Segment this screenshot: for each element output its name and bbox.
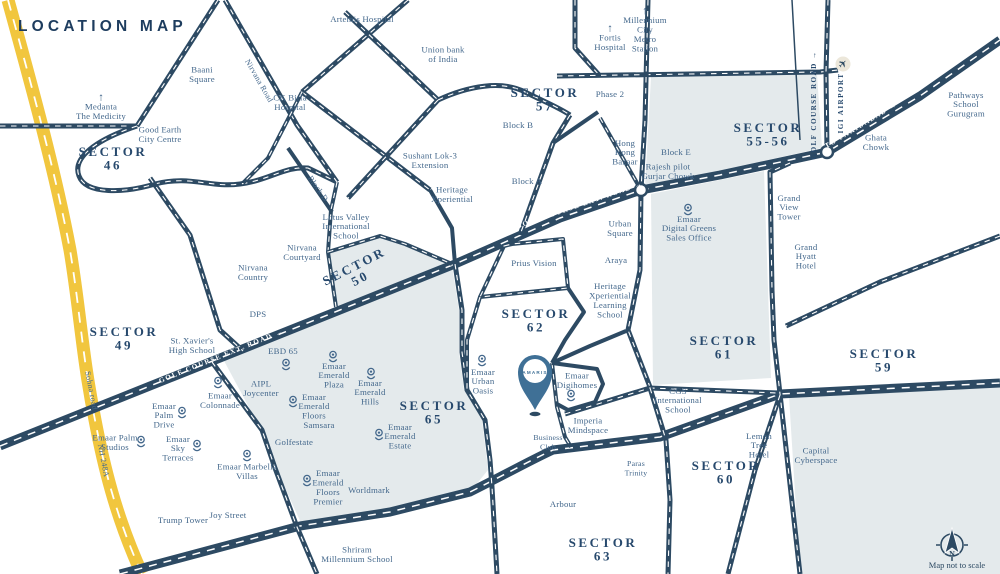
- landmark-label: EBD 65: [268, 346, 298, 356]
- sector-label: SECTOR46: [79, 144, 148, 173]
- amaris-pin-label: AMARIS: [522, 370, 547, 375]
- road: [0, 40, 1000, 446]
- landmark-label: NirvanaCountry: [238, 262, 269, 281]
- landmark-label: ParasTrinity: [625, 459, 648, 477]
- road: [728, 395, 780, 574]
- landmark-label: GrandHyattHotel: [795, 242, 818, 271]
- landmark-label: St. Xavier'sHigh School: [169, 335, 216, 354]
- landmark-label: Arbour: [550, 499, 577, 509]
- direction-arrow-icon: ↑: [607, 22, 613, 34]
- road: [650, 388, 670, 574]
- landmark-label: NirvanaCourtyard: [283, 242, 321, 261]
- landmark-label: Worldmark: [348, 485, 390, 495]
- landmark-label: Trump Tower: [158, 515, 208, 525]
- landmark-label: ShriramMillennium School: [321, 544, 393, 563]
- location-pin-icon: [214, 377, 221, 387]
- sector-label: SECTOR59: [850, 346, 919, 375]
- landmark-label: Phase 2: [596, 89, 625, 99]
- location-pin-icon: [567, 390, 574, 400]
- direction-arrow-icon: ↑: [642, 5, 648, 17]
- location-pin-icon: [178, 407, 185, 417]
- landmark-label: Rajesh pilotGurjar Chowk: [642, 161, 695, 180]
- sector-label: SECTOR49: [90, 324, 159, 353]
- sector-label: SECTOR62: [502, 306, 571, 335]
- landmark-label: LemonTreeHotel: [746, 431, 772, 460]
- landmark-label: Artemis Hospital: [330, 14, 394, 24]
- landmark-label: HeritageXperientialLearningSchool: [589, 281, 631, 319]
- landmark-label: MillenniumCityMetroStation: [623, 15, 667, 53]
- landmark-label: Block E: [661, 147, 691, 157]
- highway-road: [8, 0, 142, 574]
- landmark-label: GrandViewTower: [777, 193, 801, 222]
- amaris-pin: [518, 355, 552, 416]
- map-scale-disclaimer: Map not to scale: [929, 560, 986, 570]
- road: [786, 236, 1000, 326]
- landmark-label: PathwaysSchoolGurugram: [947, 90, 985, 119]
- location-map-page: MedantaThe Medicity↑Good EarthCity Centr…: [0, 0, 1000, 574]
- road-dashes: [150, 178, 243, 351]
- road-label: IGI AIRPORT: [837, 73, 845, 134]
- landmark-label: Joy Street: [210, 510, 247, 520]
- landmark-label: CK BirlaHospital: [273, 92, 307, 111]
- road: [150, 178, 243, 351]
- landmark-label: EmaarUrbanOasis: [471, 367, 495, 396]
- landmark-label: EmaarEmeraldFloorsPremier: [312, 468, 344, 506]
- road-label: GOLF COURSE ROAD →: [810, 51, 818, 160]
- location-map: MedantaThe Medicity↑Good EarthCity Centr…: [0, 0, 1000, 574]
- location-pin-icon: [137, 436, 144, 446]
- sector-region: [789, 385, 1000, 574]
- direction-arrow-icon: ↑: [98, 91, 104, 103]
- landmark-label: HongKongBazaar: [612, 138, 638, 167]
- landmark-label: GhataChowk: [863, 132, 890, 151]
- landmark-label: Araya: [605, 255, 628, 265]
- landmark-label: HeritageXperiential: [431, 184, 473, 203]
- location-pin-icon: [478, 355, 485, 365]
- landmark-label: Union bankof India: [421, 44, 465, 63]
- landmark-label: Emaar MarbellaVillas: [217, 461, 277, 480]
- location-pin-icon: [193, 440, 200, 450]
- road: [770, 163, 800, 574]
- sector-label: SECTOR63: [569, 535, 638, 564]
- road: [345, 12, 438, 100]
- landmark-label: EmaarDigihomes: [557, 370, 598, 389]
- landmark-label: Samsara: [303, 420, 334, 430]
- sector-region: [651, 171, 771, 385]
- landmark-label: MedantaThe Medicity: [76, 101, 126, 120]
- landmark-label: UrbanSquare: [607, 218, 633, 237]
- landmark-label: Good EarthCity Centre: [138, 124, 181, 143]
- landmark-label: EmaarEmeraldFloors: [298, 392, 330, 421]
- landmark-label: Prius Vision: [511, 258, 557, 268]
- landmark-label: FortisHospital: [594, 32, 626, 51]
- landmark-label: EmaarEmeraldEstate: [384, 422, 416, 451]
- landmark-label: ImperiaMindspace: [568, 415, 608, 434]
- landmark-label: DPS: [250, 309, 267, 319]
- landmark-label: Block A: [512, 176, 543, 186]
- landmark-label: Golfestate: [275, 437, 313, 447]
- road: [225, 0, 337, 182]
- sector-label: SECTOR57: [511, 85, 580, 114]
- landmark-label: EmaarPalmDrive: [152, 401, 176, 430]
- location-pin-icon: [243, 450, 250, 460]
- landmark-label: Sushant Lok-3Extension: [403, 150, 458, 169]
- map-generated-layer: MedantaThe Medicity↑Good EarthCity Centr…: [0, 0, 1000, 574]
- landmark-label: Block B: [503, 120, 533, 130]
- map-title: LOCATION MAP: [18, 18, 187, 35]
- landmark-label: EmaarSkyTerraces: [162, 434, 194, 463]
- landmark-label: BaaniSquare: [189, 64, 215, 83]
- road: [575, 0, 600, 76]
- compass-north-label: N: [949, 550, 955, 559]
